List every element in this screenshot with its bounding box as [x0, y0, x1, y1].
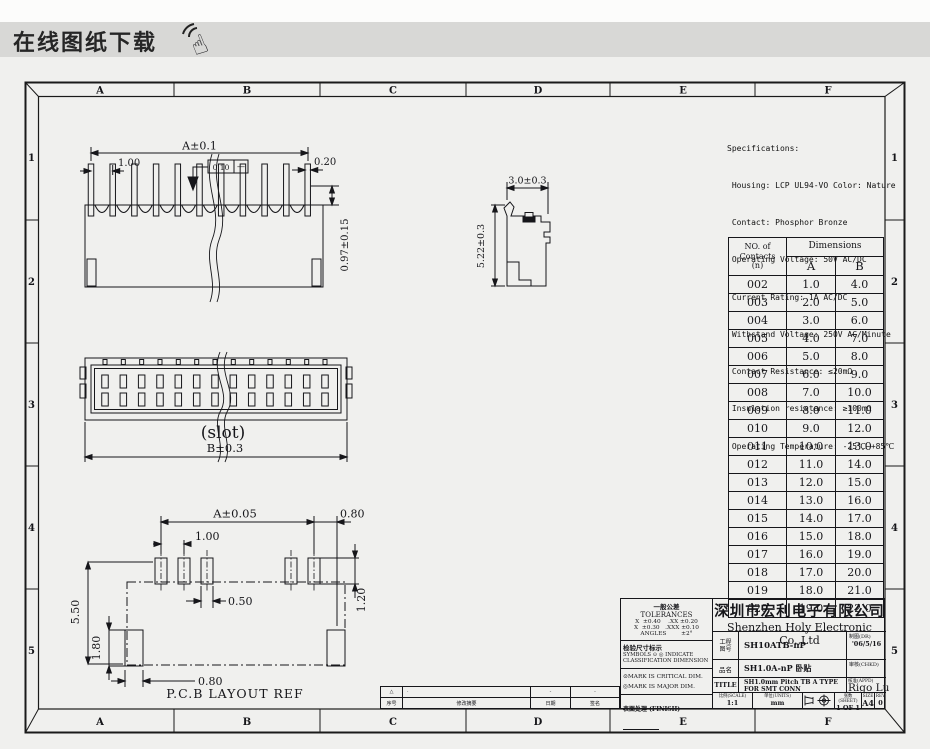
- dim-pcb-height: 5.50: [69, 600, 82, 625]
- table-row: 01817.020.0: [729, 564, 884, 582]
- dim-height: 0.97±0.15: [340, 219, 351, 272]
- revision-row: △ · - -: [381, 687, 619, 698]
- break-line: [209, 154, 222, 302]
- side-profile: [504, 202, 550, 286]
- cell-n: 016: [729, 528, 787, 546]
- cell-a: 11.0: [787, 456, 836, 474]
- dim-span: A±0.05: [212, 507, 257, 521]
- zone-row-left: 3: [28, 400, 35, 411]
- cell-b: 4.0: [836, 276, 884, 294]
- cell-a: 5.0: [787, 348, 836, 366]
- dim-pad-width: 0.50: [228, 595, 253, 608]
- contact-slots: [102, 375, 329, 406]
- dim-pad-length: 1.20: [355, 588, 368, 613]
- cell-b: 5.0: [836, 294, 884, 312]
- spec-line: Housing: LCP UL94-VO Color: Nature: [727, 180, 897, 192]
- cell-n: 010: [729, 420, 787, 438]
- table-row: 01918.021.0: [729, 582, 884, 600]
- inspection-box: 检验尺寸标示 SYMBOLS ⊙ ◎ INDICATE CLASSIFICATI…: [621, 641, 713, 669]
- rev-sign: -: [571, 687, 619, 697]
- contacts-dimension-table: NO. of Contacts (n) Dimensions A B 0021.…: [728, 237, 884, 618]
- zone-col-top: C: [389, 86, 397, 97]
- part-name-value: SH1.0A-nP 卧贴: [739, 660, 846, 677]
- dim-pcb-pitch: 1.00: [195, 530, 220, 543]
- cell-b: 6.0: [836, 312, 884, 330]
- cell-n: 006: [729, 348, 787, 366]
- cell-n: 018: [729, 564, 787, 582]
- table-row: 01514.017.0: [729, 510, 884, 528]
- cell-n: 014: [729, 492, 787, 510]
- cell-a: 14.0: [787, 510, 836, 528]
- cell-b: 15.0: [836, 474, 884, 492]
- marks-box: ⊙MARK IS CRITICAL DIM. ◎MARK IS MAJOR DI…: [621, 669, 713, 695]
- cell-a: 15.0: [787, 528, 836, 546]
- cell-a: 12.0: [787, 474, 836, 492]
- cell-b: 7.0: [836, 330, 884, 348]
- cell-a: 4.0: [787, 330, 836, 348]
- projection-cell: [803, 693, 835, 709]
- dim-overall: A±0.1: [181, 140, 217, 153]
- zone-row-right: 5: [891, 646, 898, 657]
- table-row: 0054.07.0: [729, 330, 884, 348]
- table-row: 01413.016.0: [729, 492, 884, 510]
- rev-cell: REV 0: [875, 693, 886, 709]
- table-row: 01312.015.0: [729, 474, 884, 492]
- table-row: 0076.09.0: [729, 366, 884, 384]
- sign-col-header: 签名SIGNATURE: [571, 698, 619, 709]
- cell-n: 019: [729, 582, 787, 600]
- drawn-by-cell: 制图(DR) '06/5/16: [846, 632, 886, 660]
- rev-date: -: [531, 687, 571, 697]
- header-b: B: [836, 257, 884, 276]
- zone-col-bottom: E: [679, 717, 687, 728]
- cell-b: 13.0: [836, 438, 884, 456]
- company-name-cn: 深圳市宏利电子有限公司: [713, 599, 886, 621]
- size-cell: SIZE A4: [862, 693, 875, 709]
- finish-blank-line: [623, 721, 659, 730]
- table-row: 01615.018.0: [729, 528, 884, 546]
- rev-col-header: 序号REV: [381, 698, 403, 709]
- cell-n: 009: [729, 402, 787, 420]
- corner-pad-right: [327, 630, 345, 666]
- cell-a: 18.0: [787, 582, 836, 600]
- cell-n: 012: [729, 456, 787, 474]
- cell-n: 011: [729, 438, 787, 456]
- header-dimensions: Dimensions: [787, 238, 884, 257]
- tolerances-box: 一般公差 TOLERANCES X ±0.40 .XX ±0.20 X ±0.3…: [621, 599, 713, 641]
- table-header-row: NO. of Contacts (n) Dimensions: [729, 238, 884, 257]
- revision-header-row: 序号REV 修改摘要REVISION DESCRIPTIONS 日期DATE 签…: [381, 698, 619, 709]
- scale-units-row: 比例(SCALE) 1:1 单位(UNITS) mm 张数(SHEET) 1 O…: [713, 693, 886, 709]
- title-row: TITLE SH1.0mm Pitch TB A TYPEFOR SMT CON…: [713, 678, 846, 693]
- connector-body: [85, 205, 323, 287]
- cell-a: 13.0: [787, 492, 836, 510]
- slot-caption: (slot): [201, 423, 246, 443]
- checked-by-cell: 审核(CHKD): [846, 660, 886, 678]
- dim-side-height: 5.22±0.3: [476, 224, 487, 268]
- zone-col-bottom: F: [824, 717, 831, 728]
- zone-col-bottom: A: [95, 717, 104, 728]
- cell-a: 6.0: [787, 366, 836, 384]
- scallops: [95, 205, 304, 213]
- pcb-layout-view: A±0.05 0.80 1.00 0.50 1.20 5.50 1.80 0.8…: [55, 500, 385, 710]
- table-row: 01716.019.0: [729, 546, 884, 564]
- table-row: 0065.08.0: [729, 348, 884, 366]
- table-row: 0098.011.0: [729, 402, 884, 420]
- zone-row-left: 5: [28, 646, 35, 657]
- flatness-datum: —: [237, 162, 245, 171]
- zone-row-left: 1: [28, 153, 35, 164]
- cell-a: 2.0: [787, 294, 836, 312]
- cell-b: 19.0: [836, 546, 884, 564]
- cell-n: 013: [729, 474, 787, 492]
- cell-a: 10.0: [787, 438, 836, 456]
- table-row: 0021.04.0: [729, 276, 884, 294]
- zone-col-top: A: [95, 86, 104, 97]
- third-angle-projection-icon: [803, 694, 833, 707]
- zone-row-left: 4: [28, 523, 35, 534]
- cell-b: 9.0: [836, 366, 884, 384]
- cell-b: 11.0: [836, 402, 884, 420]
- cell-n: 007: [729, 366, 787, 384]
- cell-a: 7.0: [787, 384, 836, 402]
- zone-row-left: 2: [28, 277, 35, 288]
- cell-a: 3.0: [787, 312, 836, 330]
- table-row: 0032.05.0: [729, 294, 884, 312]
- top-notches: [103, 360, 327, 365]
- units-cell: 单位(UNITS) mm: [753, 693, 803, 709]
- dim-pitch: 1.00: [118, 158, 140, 169]
- cell-b: 14.0: [836, 456, 884, 474]
- table-row: 0087.010.0: [729, 384, 884, 402]
- cell-b: 17.0: [836, 510, 884, 528]
- scale-cell: 比例(SCALE) 1:1: [713, 693, 753, 709]
- dim-pin-width: 0.20: [314, 157, 336, 168]
- cell-a: 17.0: [787, 564, 836, 582]
- cell-a: 9.0: [787, 420, 836, 438]
- corner-pad-left: [125, 630, 143, 666]
- cell-b: 12.0: [836, 420, 884, 438]
- cell-b: 10.0: [836, 384, 884, 402]
- cell-b: 16.0: [836, 492, 884, 510]
- drawn-date-value: '06/5/16: [849, 640, 884, 648]
- sheet-cell: 张数(SHEET) 1 OF 1: [835, 693, 862, 709]
- cell-b: 21.0: [836, 582, 884, 600]
- cell-b: 20.0: [836, 564, 884, 582]
- zone-col-top: E: [679, 86, 687, 97]
- front-view: (slot) B±0.3: [60, 350, 370, 470]
- table-row: 01110.013.0: [729, 438, 884, 456]
- cell-n: 015: [729, 510, 787, 528]
- zone-col-bottom: D: [534, 717, 543, 728]
- cell-n: 004: [729, 312, 787, 330]
- cell-n: 017: [729, 546, 787, 564]
- rev-desc: ·: [403, 687, 531, 697]
- dim-side-width: 3.0±0.3: [508, 176, 546, 187]
- cell-n: 005: [729, 330, 787, 348]
- revision-strip: △ · - - 序号REV 修改摘要REVISION DESCRIPTIONS …: [380, 686, 620, 709]
- cell-n: 008: [729, 384, 787, 402]
- zone-col-top: B: [243, 86, 251, 97]
- dim-corner-pad-height: 1.80: [90, 636, 103, 661]
- drawing-no-row: 工程图号 SH10ATB-nP: [713, 632, 846, 660]
- header-contacts: NO. of Contacts (n): [729, 238, 787, 276]
- table-row: 0109.012.0: [729, 420, 884, 438]
- table-row: 01211.014.0: [729, 456, 884, 474]
- title-block: 一般公差 TOLERANCES X ±0.40 .XX ±0.20 X ±0.3…: [620, 598, 885, 709]
- zone-row-right: 4: [891, 523, 898, 534]
- spec-line: Contact: Phosphor Bronze: [727, 217, 897, 229]
- side-view: 3.0±0.3 5.22±0.3: [455, 150, 580, 310]
- table-row: 0043.06.0: [729, 312, 884, 330]
- cell-a: 16.0: [787, 546, 836, 564]
- desc-col-header: 修改摘要REVISION DESCRIPTIONS: [403, 698, 531, 709]
- rev-marker: △: [381, 687, 403, 697]
- cell-n: 003: [729, 294, 787, 312]
- top-view: A±0.1 1.00 0.20 0.97±0.15 0.10 —: [60, 140, 360, 308]
- approved-by-cell: 核准(APPD) Rigo Lu: [846, 678, 886, 693]
- zone-col-bottom: B: [243, 717, 251, 728]
- cell-n: 002: [729, 276, 787, 294]
- spec-line: Specifications:: [727, 143, 897, 155]
- date-col-header: 日期DATE: [531, 698, 571, 709]
- smt-pads: [155, 550, 320, 592]
- cell-b: 8.0: [836, 348, 884, 366]
- dim-width-b: B±0.3: [207, 441, 243, 455]
- pins: [88, 164, 310, 216]
- zone-col-bottom: C: [389, 717, 397, 728]
- pcb-caption: P.C.B LAYOUT REF: [166, 686, 303, 701]
- part-name-row: 品名 SH1.0A-nP 卧贴: [713, 660, 846, 678]
- zone-col-top: D: [534, 86, 543, 97]
- header-a: A: [787, 257, 836, 276]
- company-box: 深圳市宏利电子有限公司 Shenzhen Holy Electronic Co.…: [713, 599, 886, 632]
- finish-box: 表面处理 (FINISH): [621, 695, 713, 709]
- cell-a: 1.0: [787, 276, 836, 294]
- zone-col-top: F: [824, 86, 831, 97]
- cell-b: 18.0: [836, 528, 884, 546]
- drawing-no-value: SH10ATB-nP: [739, 632, 846, 659]
- flatness-value: 0.10: [213, 163, 230, 172]
- cell-a: 8.0: [787, 402, 836, 420]
- front-body: [85, 358, 347, 420]
- dim-end-gap: 0.80: [340, 508, 365, 521]
